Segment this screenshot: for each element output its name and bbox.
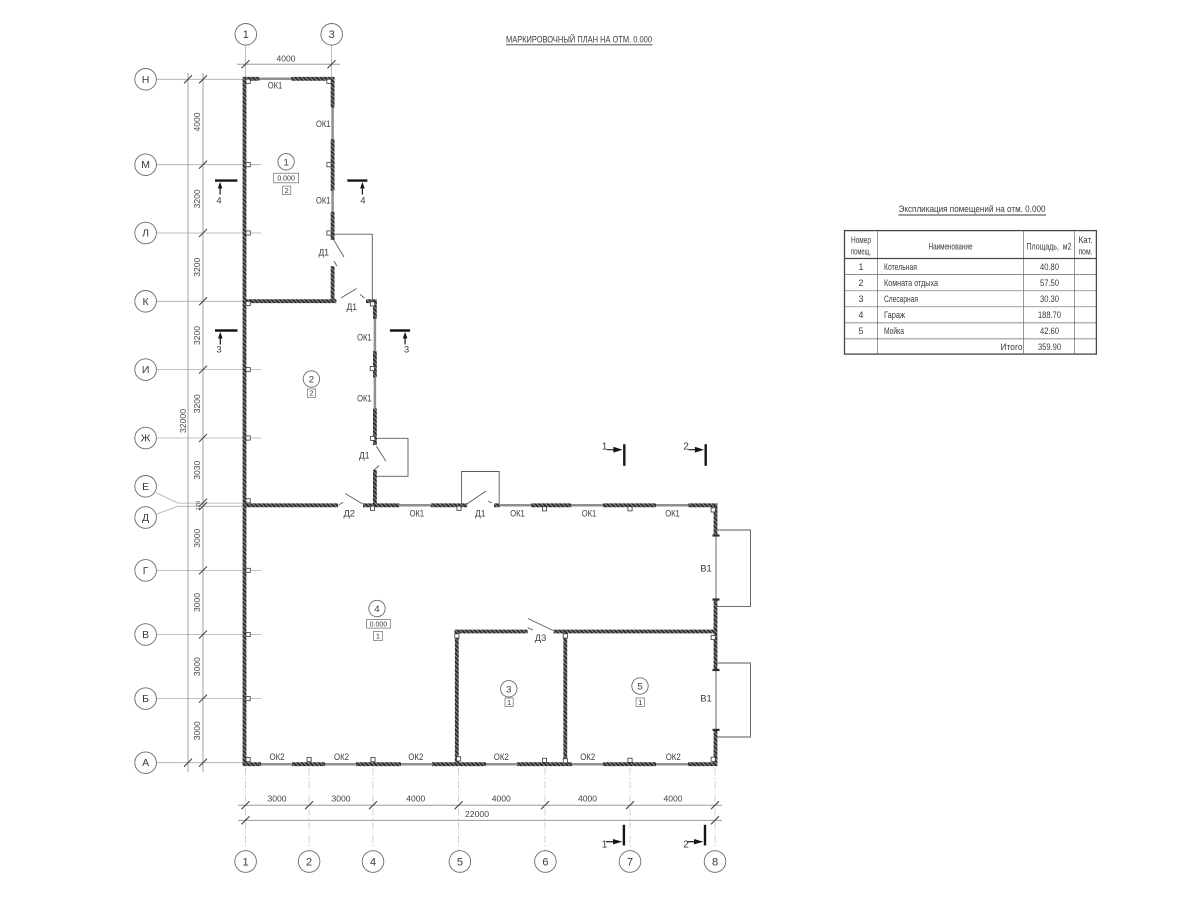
svg-text:ОК1: ОК1	[316, 119, 331, 130]
svg-text:ОК2: ОК2	[270, 752, 285, 763]
svg-text:1: 1	[283, 157, 288, 168]
svg-text:4000: 4000	[406, 794, 425, 804]
svg-text:пом.: пом.	[1079, 247, 1093, 257]
svg-text:40.80: 40.80	[1040, 262, 1059, 272]
svg-text:1: 1	[376, 632, 380, 641]
svg-text:помещ.: помещ.	[851, 247, 871, 257]
svg-text:Д1: Д1	[346, 302, 357, 313]
svg-text:2: 2	[683, 839, 689, 850]
svg-text:2: 2	[306, 856, 312, 868]
svg-text:0.000: 0.000	[370, 621, 388, 628]
svg-text:2: 2	[683, 442, 689, 453]
svg-text:Экспликация помещений на отм.: Экспликация помещений на отм. 0.000	[899, 204, 1046, 215]
svg-text:3200: 3200	[192, 257, 202, 276]
svg-text:ОК1: ОК1	[582, 509, 597, 520]
svg-text:К: К	[143, 296, 150, 308]
svg-text:3000: 3000	[192, 593, 202, 612]
svg-text:И: И	[142, 364, 150, 376]
svg-text:3: 3	[216, 345, 221, 356]
svg-text:6: 6	[542, 856, 548, 868]
svg-text:4: 4	[370, 856, 376, 868]
svg-text:Наименование: Наименование	[929, 242, 973, 252]
svg-text:2: 2	[859, 278, 864, 288]
svg-text:ОК1: ОК1	[357, 394, 372, 405]
svg-text:Е: Е	[142, 481, 149, 493]
svg-text:А: А	[142, 757, 149, 769]
svg-text:4: 4	[859, 310, 864, 320]
svg-text:4: 4	[374, 604, 379, 615]
svg-text:Комната отдыха: Комната отдыха	[884, 278, 938, 288]
svg-text:Площадь, м2: Площадь, м2	[1027, 242, 1072, 252]
svg-text:4000: 4000	[492, 794, 511, 804]
svg-text:3: 3	[404, 345, 409, 356]
svg-text:Д: Д	[142, 512, 149, 524]
svg-text:3200: 3200	[192, 189, 202, 208]
svg-text:3000: 3000	[332, 794, 351, 804]
svg-text:В: В	[142, 629, 149, 641]
svg-text:30.30: 30.30	[1040, 294, 1059, 304]
svg-text:0.000: 0.000	[277, 176, 295, 183]
svg-text:Г: Г	[143, 565, 149, 577]
svg-text:3: 3	[859, 294, 864, 304]
svg-text:32000: 32000	[178, 409, 188, 433]
svg-text:1: 1	[602, 442, 608, 453]
svg-text:8: 8	[712, 856, 718, 868]
svg-text:В1: В1	[700, 564, 712, 575]
svg-text:Мойка: Мойка	[884, 326, 904, 336]
svg-text:3200: 3200	[192, 394, 202, 413]
svg-text:1: 1	[243, 856, 249, 868]
svg-text:ОК1: ОК1	[510, 509, 525, 520]
svg-text:4: 4	[216, 196, 221, 207]
svg-text:МАРКИРОВОЧНЫЙ ПЛАН НА ОТМ. 0.0: МАРКИРОВОЧНЫЙ ПЛАН НА ОТМ. 0.000	[506, 33, 652, 45]
svg-text:Д1: Д1	[475, 509, 486, 520]
svg-text:ОК1: ОК1	[410, 509, 425, 520]
svg-text:Слесарная: Слесарная	[884, 294, 918, 304]
svg-text:ОК1: ОК1	[665, 509, 680, 520]
svg-text:Гараж: Гараж	[884, 310, 905, 320]
svg-text:3000: 3000	[192, 657, 202, 676]
svg-text:1: 1	[602, 839, 608, 850]
svg-text:3000: 3000	[192, 529, 202, 548]
svg-text:ОК2: ОК2	[580, 752, 595, 763]
svg-text:57.50: 57.50	[1040, 278, 1059, 288]
svg-text:42.60: 42.60	[1040, 326, 1059, 336]
svg-text:ОК2: ОК2	[334, 752, 349, 763]
svg-text:Д1: Д1	[359, 451, 370, 462]
svg-text:3000: 3000	[268, 794, 287, 804]
svg-text:Н: Н	[142, 74, 150, 86]
svg-text:4000: 4000	[664, 794, 683, 804]
svg-text:Д3: Д3	[535, 633, 547, 644]
svg-text:7: 7	[627, 856, 633, 868]
svg-text:ОК1: ОК1	[357, 333, 372, 344]
svg-text:3: 3	[506, 684, 511, 695]
svg-text:3: 3	[329, 29, 335, 41]
svg-text:4000: 4000	[192, 112, 202, 131]
svg-text:4: 4	[360, 196, 365, 207]
svg-text:359.90: 359.90	[1038, 342, 1061, 352]
svg-text:Номер: Номер	[851, 235, 871, 245]
svg-text:Итого: Итого	[1001, 342, 1023, 352]
svg-text:2: 2	[285, 186, 289, 195]
svg-text:4000: 4000	[578, 794, 597, 804]
svg-text:Д2: Д2	[343, 509, 355, 520]
svg-text:188.70: 188.70	[1038, 310, 1061, 320]
svg-text:3030: 3030	[192, 461, 202, 480]
svg-text:2: 2	[309, 375, 314, 386]
svg-text:Кат.: Кат.	[1079, 235, 1093, 245]
svg-text:5: 5	[859, 326, 864, 336]
svg-text:1: 1	[507, 698, 511, 707]
svg-text:170: 170	[196, 501, 202, 510]
svg-text:В1: В1	[700, 694, 712, 705]
svg-text:3000: 3000	[192, 721, 202, 740]
svg-text:4000: 4000	[277, 54, 296, 64]
svg-text:22000: 22000	[465, 809, 489, 819]
svg-text:Д1: Д1	[319, 248, 330, 259]
svg-text:Котельная: Котельная	[884, 262, 917, 272]
svg-text:5: 5	[637, 682, 642, 693]
svg-text:1: 1	[243, 29, 249, 41]
svg-text:М: М	[141, 159, 150, 171]
svg-text:ОК2: ОК2	[408, 752, 423, 763]
svg-text:1: 1	[859, 262, 864, 272]
svg-text:ОК2: ОК2	[666, 752, 681, 763]
svg-text:3200: 3200	[192, 326, 202, 345]
svg-text:2: 2	[309, 389, 313, 398]
svg-text:ОК1: ОК1	[316, 195, 331, 206]
svg-text:ОК2: ОК2	[494, 752, 509, 763]
svg-text:ОК1: ОК1	[268, 81, 283, 92]
svg-text:Б: Б	[142, 693, 149, 705]
svg-text:5: 5	[457, 856, 463, 868]
svg-text:Ж: Ж	[141, 433, 151, 445]
svg-text:Л: Л	[142, 228, 149, 240]
svg-text:1: 1	[638, 698, 642, 707]
